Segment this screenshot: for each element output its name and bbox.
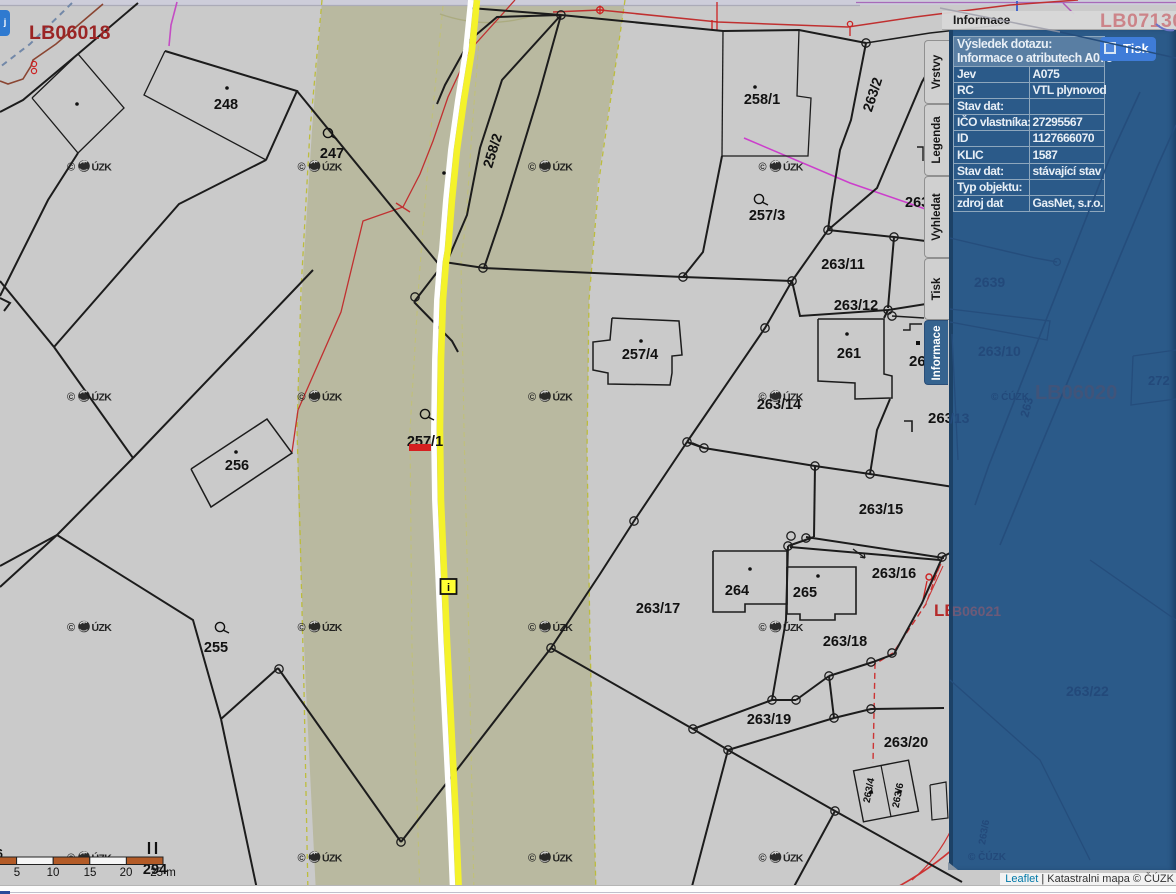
svg-text:LB06018: LB06018 xyxy=(29,22,111,44)
svg-text:263/18: 263/18 xyxy=(823,634,867,650)
svg-text:©: © xyxy=(298,853,306,865)
svg-text:ÚZK: ÚZK xyxy=(553,161,574,174)
svg-text:258/1: 258/1 xyxy=(744,92,780,108)
svg-text:25 m: 25 m xyxy=(150,867,176,879)
svg-text:261: 261 xyxy=(837,346,861,362)
svg-text:©: © xyxy=(759,622,767,634)
svg-text:ÚZK: ÚZK xyxy=(92,391,113,404)
svg-text:263/16: 263/16 xyxy=(872,566,916,582)
svg-text:255: 255 xyxy=(204,640,228,656)
svg-text:5: 5 xyxy=(14,867,20,879)
svg-text:©: © xyxy=(528,853,536,865)
svg-text:257/3: 257/3 xyxy=(749,208,785,224)
svg-text:©: © xyxy=(298,392,306,404)
svg-text:©: © xyxy=(528,162,536,174)
svg-text:©: © xyxy=(67,162,75,174)
svg-text:263/17: 263/17 xyxy=(636,601,680,617)
svg-text:265: 265 xyxy=(793,585,817,601)
svg-text:263/2: 263/2 xyxy=(859,75,885,113)
svg-text:ÚZK: ÚZK xyxy=(92,161,113,174)
svg-text:263/19: 263/19 xyxy=(747,712,791,728)
svg-text:©: © xyxy=(67,392,75,404)
svg-text:©: © xyxy=(528,622,536,634)
svg-text:ÚZK: ÚZK xyxy=(322,391,343,404)
svg-text:263/6: 263/6 xyxy=(891,782,907,809)
svg-text:ÚZK: ÚZK xyxy=(322,161,343,174)
svg-text:20: 20 xyxy=(120,867,133,879)
svg-text:ÚZK: ÚZK xyxy=(322,852,343,865)
svg-text:256: 256 xyxy=(225,458,249,474)
svg-text:©: © xyxy=(759,853,767,865)
svg-text:ÚZK: ÚZK xyxy=(92,621,113,634)
svg-text:264: 264 xyxy=(725,583,749,599)
svg-text:ÚZK: ÚZK xyxy=(322,621,343,634)
svg-text:©: © xyxy=(759,162,767,174)
svg-text:©: © xyxy=(67,622,75,634)
svg-text:©: © xyxy=(298,162,306,174)
svg-text:263/12: 263/12 xyxy=(834,298,878,314)
svg-text:ÚZK: ÚZK xyxy=(553,391,574,404)
svg-text:263/20: 263/20 xyxy=(884,735,928,751)
svg-text:248: 248 xyxy=(214,97,238,113)
svg-text:i: i xyxy=(447,582,450,594)
svg-text:263/11: 263/11 xyxy=(821,257,865,273)
svg-text:257/4: 257/4 xyxy=(622,347,658,363)
svg-text:263/4: 263/4 xyxy=(862,777,878,804)
svg-text:©: © xyxy=(298,622,306,634)
svg-text:263/15: 263/15 xyxy=(859,502,903,518)
svg-text:ÚZK: ÚZK xyxy=(783,621,804,634)
svg-text:ÚZK: ÚZK xyxy=(553,852,574,865)
svg-text:©: © xyxy=(759,392,767,404)
svg-text:ÚZK: ÚZK xyxy=(783,391,804,404)
svg-text:15: 15 xyxy=(84,867,97,879)
svg-text:ÚZK: ÚZK xyxy=(783,852,804,865)
svg-text:ÚZK: ÚZK xyxy=(553,621,574,634)
svg-text:©: © xyxy=(528,392,536,404)
svg-text:ÚZK: ÚZK xyxy=(783,161,804,174)
svg-text:247: 247 xyxy=(320,146,344,162)
svg-text:10: 10 xyxy=(47,867,60,879)
